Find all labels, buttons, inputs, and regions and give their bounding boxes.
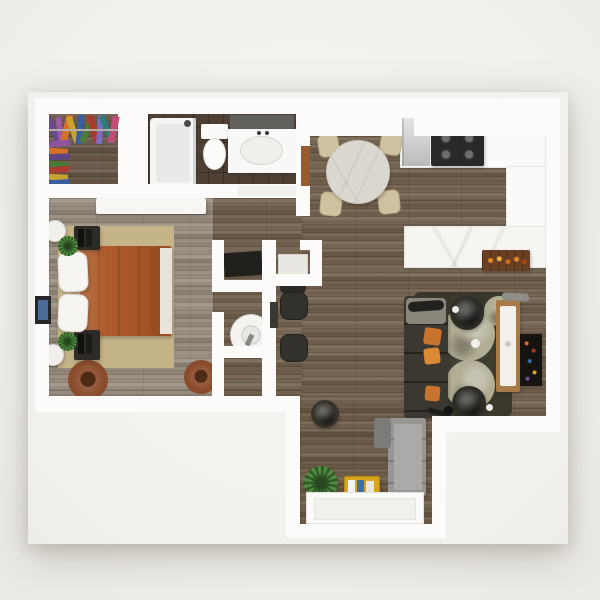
bedroom-plant <box>58 236 78 256</box>
ottoman <box>452 386 486 420</box>
shower-glass <box>193 118 196 188</box>
console-knob <box>505 341 511 347</box>
floor-lamp-shade <box>444 406 453 415</box>
soundbar <box>502 292 529 301</box>
core-wall-right-south <box>276 274 322 286</box>
faucet-dot <box>265 131 269 135</box>
desk-chair <box>280 334 308 362</box>
core-door-slot <box>270 302 278 328</box>
nightstand-books <box>86 334 92 354</box>
nightstand-books <box>78 229 84 247</box>
nightstand-books <box>86 229 92 247</box>
core-wall-laundry-south <box>212 346 268 358</box>
sofa-pillow <box>424 385 440 401</box>
core-counter <box>278 254 308 276</box>
bed-blanket-edge <box>150 248 160 334</box>
shower-head <box>184 120 191 127</box>
kitchen-counter-right <box>506 166 546 228</box>
wine-rack <box>482 250 530 271</box>
toilet-bowl <box>203 138 226 170</box>
toilet-tank <box>201 124 228 139</box>
shower-inner <box>156 124 190 182</box>
bench-arm <box>374 418 391 448</box>
door-mat-inner <box>314 498 416 520</box>
wall-art-canvas <box>38 300 48 320</box>
bedroom-dresser <box>96 198 206 214</box>
closet-cabinet <box>118 112 148 186</box>
towel-rack <box>301 146 310 186</box>
rug-dot <box>486 404 493 411</box>
entry-stool <box>311 400 339 428</box>
sofa-pillow <box>423 327 442 346</box>
nightstand-books <box>78 334 84 354</box>
bed-pillow <box>57 251 89 293</box>
bed-sheet <box>160 248 172 334</box>
wall-right <box>546 98 560 432</box>
vanity-sink <box>240 136 283 165</box>
desk-chair <box>280 292 308 320</box>
bed-pillow <box>57 293 89 333</box>
bedroom-plant <box>58 332 77 351</box>
sofa-pillow <box>423 347 441 365</box>
wall-living-bottom <box>432 416 560 432</box>
rug-dot <box>471 339 480 348</box>
rug-dot <box>452 306 459 313</box>
floorplan <box>0 0 600 600</box>
wall-bedroom-bottom <box>35 396 288 412</box>
dining-window-ledge <box>302 112 402 136</box>
wall-entry-bottom <box>286 524 446 538</box>
vanity-mirror <box>230 115 294 129</box>
dining-table <box>326 140 390 204</box>
bathroom-door <box>238 186 296 196</box>
tv <box>520 334 542 386</box>
wall-entry-left <box>286 396 300 538</box>
wall-entry-right <box>432 416 446 538</box>
core-desk <box>223 251 263 278</box>
bench-seat <box>394 424 422 490</box>
ottoman <box>450 296 484 330</box>
faucet-dot <box>257 131 261 135</box>
core-wall-laundry-west <box>212 312 224 404</box>
closet-rail <box>48 129 118 131</box>
bedroom-pouf <box>68 360 108 400</box>
wall-left <box>35 98 49 412</box>
